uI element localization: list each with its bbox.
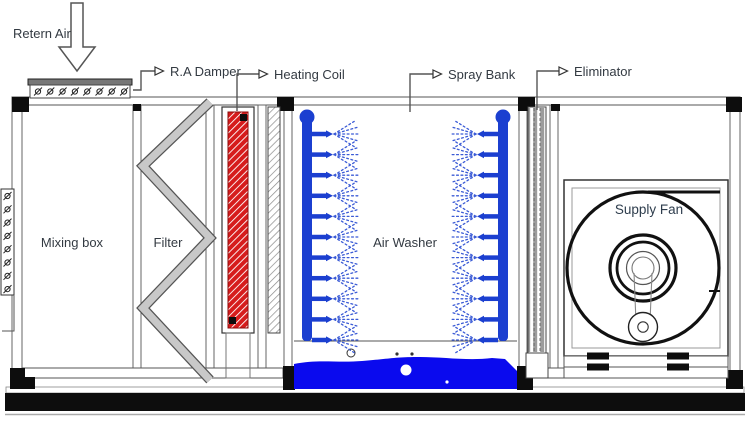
fresh-air-damper-frame bbox=[1, 189, 14, 295]
foot-left-1 bbox=[10, 368, 25, 389]
ahu-diagram-svg: Retern Air R.A Damper Mixing box Filter … bbox=[0, 0, 750, 422]
floor-rail-left bbox=[22, 368, 283, 378]
coil-stub-bottom bbox=[229, 317, 236, 324]
coil-stub-top bbox=[240, 114, 247, 121]
spray-nozzles-right bbox=[452, 121, 498, 352]
mixing-box-section: Mixing box bbox=[41, 235, 104, 250]
base-frame bbox=[5, 387, 745, 415]
cap-wall-a bbox=[133, 104, 141, 111]
return-air-inlet: Retern Air bbox=[13, 3, 95, 71]
bubble-5 bbox=[445, 380, 448, 383]
spray-bank-left bbox=[300, 110, 359, 353]
heating-coil-section bbox=[222, 107, 280, 378]
spray-header-right bbox=[498, 117, 508, 341]
cap-top-right bbox=[726, 97, 742, 112]
wall-mixing-filter bbox=[133, 105, 141, 378]
wall-coil-inner bbox=[258, 105, 266, 378]
eliminator-base-box bbox=[526, 353, 548, 378]
ra-damper bbox=[28, 79, 132, 98]
ra-damper-leader bbox=[133, 71, 155, 90]
fan-base bbox=[564, 353, 728, 379]
cap-top-left bbox=[12, 97, 29, 112]
ahu-diagram: Retern Air R.A Damper Mixing box Filter … bbox=[0, 0, 750, 422]
wall-eliminator-fan bbox=[550, 105, 558, 378]
air-washer-section: Air Washer bbox=[294, 110, 517, 390]
spray-header-left bbox=[302, 117, 312, 341]
ra-damper-label: R.A Damper bbox=[170, 64, 241, 79]
base-bar bbox=[5, 393, 745, 411]
heating-coil bbox=[228, 112, 248, 328]
return-air-label: Retern Air bbox=[13, 26, 71, 41]
eliminator-label: Eliminator bbox=[574, 64, 632, 79]
supply-fan-section: Supply Fan bbox=[564, 180, 728, 378]
ra-damper-plate bbox=[28, 79, 132, 85]
supply-fan-label: Supply Fan bbox=[615, 202, 683, 217]
eliminator-section bbox=[526, 107, 548, 378]
heating-coil-label: Heating Coil bbox=[274, 67, 345, 82]
spray-nozzles-left bbox=[312, 121, 358, 352]
filter-label: Filter bbox=[154, 235, 184, 250]
eliminator bbox=[528, 107, 546, 353]
spray-bank-leader bbox=[410, 74, 433, 112]
spray-bank-label: Spray Bank bbox=[448, 67, 516, 82]
foot-left-2 bbox=[24, 377, 35, 389]
air-washer-label: Air Washer bbox=[373, 235, 437, 250]
pad-basin-left bbox=[283, 366, 295, 390]
spray-bank-right bbox=[452, 110, 511, 353]
right-wall bbox=[730, 105, 740, 388]
wall-washer-eliminator bbox=[519, 105, 527, 378]
bubble-3 bbox=[410, 352, 413, 355]
filter-section: Filter bbox=[143, 102, 210, 380]
ra-damper-frame bbox=[30, 85, 130, 98]
bubble-4 bbox=[401, 365, 412, 376]
coil-screen bbox=[268, 107, 280, 333]
bubble-2 bbox=[395, 352, 398, 355]
cap-fan-left bbox=[551, 104, 560, 111]
mixing-box-label: Mixing box bbox=[41, 235, 104, 250]
wall-coil-washer bbox=[284, 105, 292, 378]
foot-right bbox=[726, 370, 743, 389]
